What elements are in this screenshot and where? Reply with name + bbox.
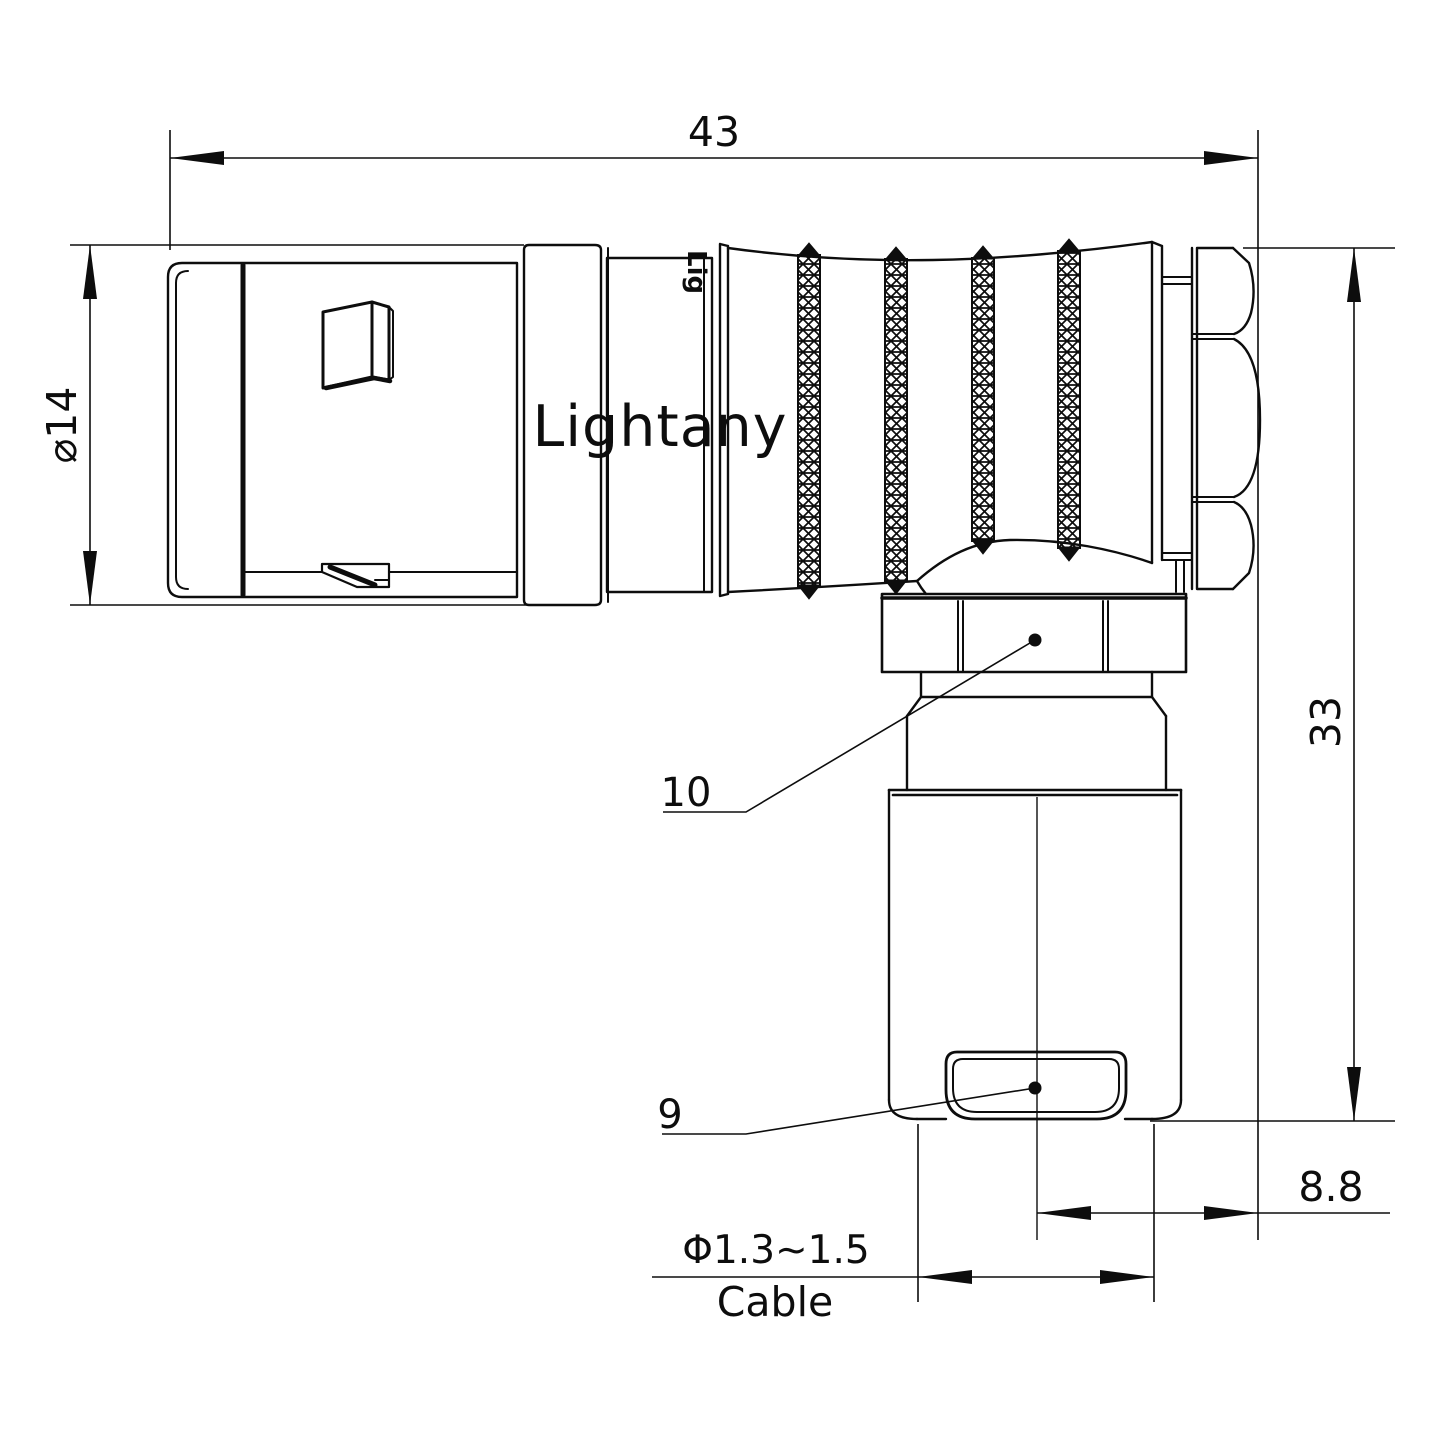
leader-coupling-nut (663, 634, 1042, 813)
dim-cable-label-text: Cable (717, 1278, 833, 1326)
rear-neck (1162, 277, 1192, 592)
front-sleeve (168, 263, 517, 597)
knurl-band (972, 246, 994, 554)
watermark-text: Lightany (532, 394, 787, 460)
keyway-notch (322, 564, 389, 587)
connector-outline (168, 242, 1260, 1119)
part-label-coupling-nut: 10 (661, 770, 712, 816)
dim-overall-height-text: 33 (1302, 696, 1350, 748)
knurl-band (885, 247, 907, 594)
leader-cable-clamp (662, 1082, 1042, 1135)
knurl-bands (798, 239, 1080, 599)
knurl-band (798, 243, 820, 599)
dim-front-diameter (70, 245, 531, 605)
back-nut (1192, 248, 1260, 589)
elbow-coupling-nut (882, 594, 1186, 672)
body-engraving: Lig (681, 250, 711, 294)
connector-technical-drawing: Lightany (0, 0, 1440, 1440)
part-label-cable-clamp: 9 (657, 1092, 682, 1138)
dim-overall-length-text: 43 (688, 108, 740, 156)
dim-cable-diameter-text: Φ1.3~1.5 (682, 1228, 869, 1273)
polarizing-key (323, 302, 393, 388)
technical-drawing-page: Lightany (0, 0, 1440, 1440)
dim-front-diameter-text: ⌀14 (38, 387, 86, 464)
dim-rear-offset-text: 8.8 (1298, 1163, 1363, 1211)
knurl-band (1058, 239, 1080, 561)
dim-overall-height (1150, 248, 1395, 1121)
dim-overall-length (170, 130, 1258, 1240)
